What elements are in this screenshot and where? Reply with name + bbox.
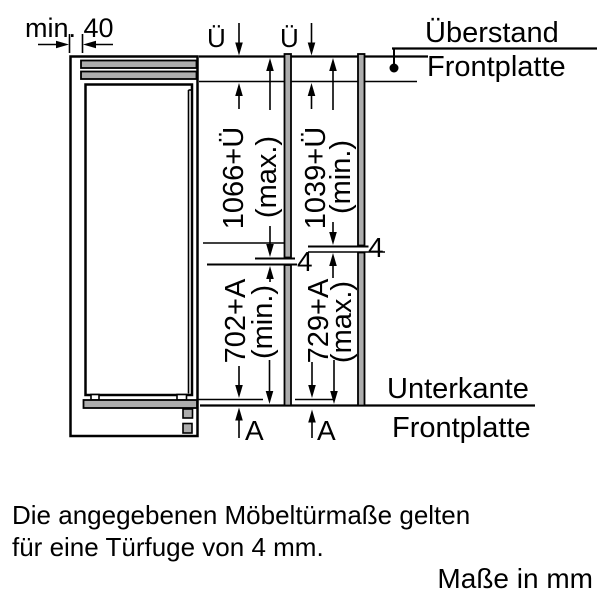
lower-right-dim-qualifier: (max.) [326,281,358,363]
upper-left-dim-qualifier: (max.) [251,136,283,218]
door-panel-right-upper [358,54,365,246]
leader-dot [390,64,399,73]
door-panel-right-lower [358,253,365,406]
overhang-label-line1: Überstand [425,17,559,49]
bottom-edge-callout: Unterkante Frontplatte [387,373,531,444]
gap-label-right: 4 [368,232,384,263]
arrow-down-icon [330,391,338,404]
u-label-left: Ü [207,23,226,53]
arrow-down-icon [329,232,337,245]
lower-left-dim-qualifier: (min.) [247,285,279,359]
notes: Die angegebenen Möbeltürmaße gelten für … [12,500,593,594]
overhang-label-line2: Frontplatte [427,51,566,83]
arrow-down-icon [266,391,274,404]
a-label-left: A [245,415,264,446]
upper-right-dimension: 1039+Ü (min.) [300,58,357,245]
units-label: Maße in mm [437,563,593,594]
arrow-down-icon [308,43,316,56]
arrow-down-icon [266,244,274,257]
u-dimension-left: Ü [207,23,243,109]
bottom-edge-label-line2: Frontplatte [392,412,531,444]
appliance-door-front [86,85,193,396]
arrow-down-icon [235,385,243,398]
overhang-callout: Überstand Frontplatte [390,17,598,83]
note-line-2: für eine Türfuge von 4 mm. [12,532,324,562]
base-tab-2 [183,424,192,434]
arrow-down-icon [308,385,316,398]
bottom-edge-label-line1: Unterkante [387,373,529,405]
min-clearance-dimension: min. 40 [25,13,114,53]
upper-left-dim-value: 1066+Ü [218,127,250,229]
cabinet-top-panel-2 [81,72,197,80]
a-label-right: A [317,415,336,446]
lower-left-dimension: 702+A (min.) [220,266,279,404]
cabinet-top-panel-1 [81,61,197,69]
door-panel-left-lower [285,265,292,406]
base-panel [84,400,198,408]
gap-label-left: 4 [297,246,313,277]
cabinet-outline [71,57,198,437]
a-dimension-right: A [308,410,336,447]
upper-left-dimension: 1066+Ü (max.) [218,58,283,257]
upper-right-dim-qualifier: (min.) [325,140,357,214]
a-dimension-left: A [235,408,264,447]
note-line-1: Die angegebenen Möbeltürmaße gelten [12,500,470,530]
u-label-right: Ü [280,23,299,53]
door-panel-left-upper [285,54,292,258]
base-tab-1 [183,409,193,418]
installation-diagram: min. 40 Überstand Frontplatte Ü [0,0,600,600]
arrow-down-icon [235,43,243,56]
